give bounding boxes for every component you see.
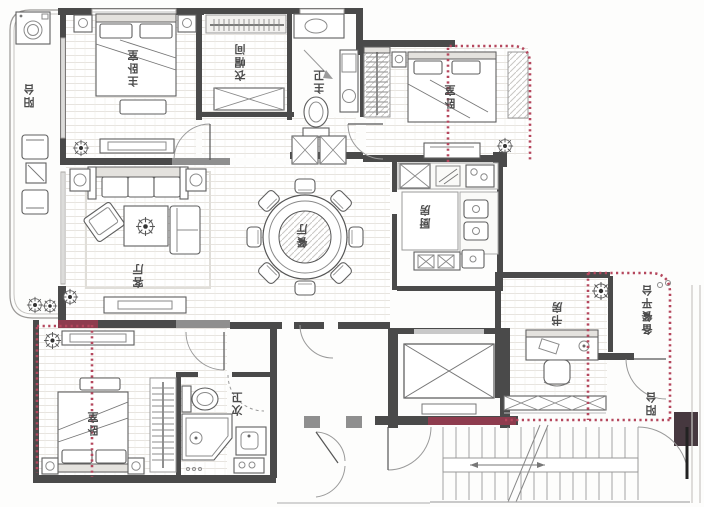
toilet-icon	[303, 97, 329, 137]
desk-icon	[526, 330, 598, 360]
plant-icon	[592, 282, 610, 300]
tv-console-icon	[104, 297, 186, 313]
sink-icon	[236, 427, 266, 455]
room-label-balcony-left: 阳台	[25, 82, 37, 108]
sofa-icon	[88, 167, 188, 199]
kitchen-fittings	[398, 163, 498, 270]
armchair-icon	[170, 206, 200, 254]
dresser-icon	[424, 143, 480, 158]
floor-plan-drawing	[0, 0, 704, 507]
room-label-master-bath: 主卫	[315, 68, 327, 94]
desk-chair-icon	[544, 360, 570, 386]
room-label-balcony-right: 阳台	[647, 390, 659, 416]
left-balcony	[10, 10, 62, 318]
elevator-shaft	[404, 344, 494, 414]
staircase	[430, 425, 690, 502]
room-label-master-bedroom: 主卧室	[129, 48, 141, 87]
vanity-icon	[294, 14, 344, 38]
room-label-kitchen: 厨房	[421, 203, 433, 229]
stove-icon	[414, 252, 460, 270]
plant-icon	[73, 140, 89, 156]
room-label-bedroom-bottom: 卧室	[89, 410, 101, 436]
plant-icon	[62, 289, 78, 305]
room-label-bedroom-right: 卧室	[446, 83, 458, 109]
console-icon	[62, 331, 134, 345]
plant-icon	[43, 299, 57, 313]
plant-icon	[44, 332, 61, 349]
room-label-living-room: 客厅	[134, 262, 146, 288]
plant-icon	[497, 138, 513, 154]
plant-icon	[136, 217, 155, 236]
washing-machine-icon	[16, 12, 50, 44]
plant-icon	[27, 297, 43, 313]
tv-console-icon	[100, 139, 174, 153]
room-label-dining-room: 餐厅	[298, 222, 310, 248]
room-label-study: 书房	[553, 300, 565, 326]
floor-plan: 阳台 主卧室 衣帽间 主卫 卧室 客厅 餐厅 厨房 书房 备餐平台 阳台 卧室 …	[0, 0, 704, 507]
balcony-chairs	[22, 135, 48, 214]
bay-window-seat	[504, 396, 606, 413]
bench-icon	[80, 378, 120, 390]
bench-icon	[120, 100, 166, 114]
room-label-prep-platform: 备餐平台	[643, 283, 655, 335]
room-label-second-bath: 次卫	[233, 390, 245, 416]
toilet-icon	[182, 386, 218, 412]
room-label-cloakroom: 衣帽间	[236, 42, 248, 81]
